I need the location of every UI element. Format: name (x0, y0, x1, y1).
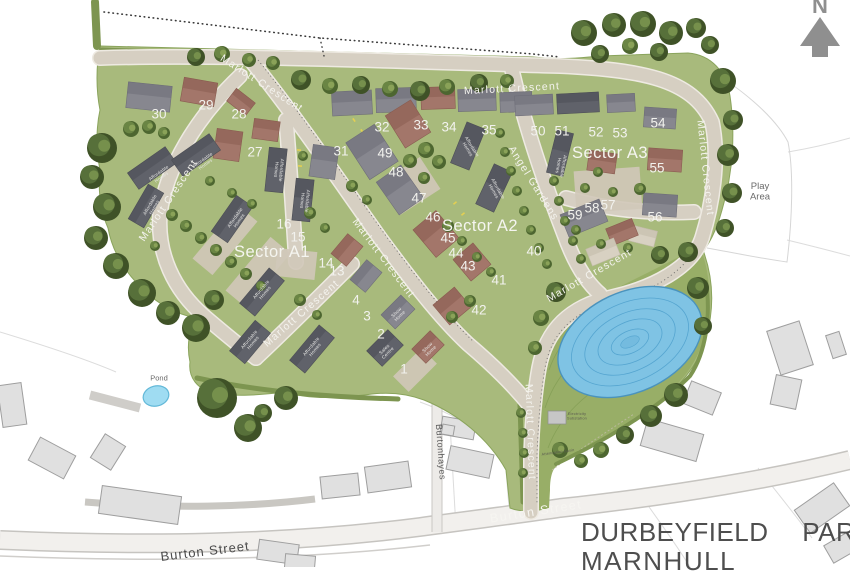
tree-icon (526, 225, 536, 235)
plot-number-label: 46 (425, 210, 440, 225)
building (213, 128, 243, 161)
tree-icon (274, 386, 298, 410)
tree-icon (717, 144, 739, 166)
plot-number-label: 28 (231, 107, 246, 122)
sector-label: Sector A3 (572, 144, 648, 162)
tree-icon (87, 133, 117, 163)
tree-icon (687, 277, 709, 299)
tree-icon (571, 20, 597, 46)
parcel-line (0, 332, 116, 372)
plot-number-label: 1 (400, 362, 408, 377)
tree-icon (128, 279, 156, 307)
tree-icon (576, 254, 586, 264)
context-building (683, 381, 722, 415)
plan-title-line1: DURBEYFIELD PARK, (581, 518, 850, 547)
tree-icon (593, 442, 609, 458)
tree-icon (187, 48, 205, 66)
building (252, 118, 281, 141)
tree-icon (254, 404, 272, 422)
parcel-line (788, 138, 850, 152)
tree-icon (418, 142, 434, 158)
plot-number-label: 32 (374, 120, 389, 135)
tree-icon (432, 155, 446, 169)
tree-icon (247, 199, 257, 209)
context-building (284, 554, 315, 567)
tree-icon (591, 45, 609, 63)
plot-number-label: 2 (377, 327, 385, 342)
tree-icon (195, 232, 207, 244)
tree-icon (410, 81, 430, 101)
plot-number-label: 43 (460, 259, 475, 274)
plot-number-label: 31 (333, 144, 348, 159)
plot-number-label: 54 (650, 116, 666, 131)
pond-label: Pond (150, 374, 168, 383)
tree-icon (664, 383, 688, 407)
plot-number-label: 40 (526, 244, 541, 259)
building (331, 90, 372, 116)
plot-number-label: 16 (276, 217, 291, 232)
context-building (826, 331, 847, 358)
plan-title-line2: MARNHULL (581, 547, 850, 576)
tree-icon (80, 165, 104, 189)
tree-icon (580, 183, 590, 193)
tree-icon (723, 110, 743, 130)
tree-icon (554, 196, 564, 206)
tree-icon (608, 187, 618, 197)
plot-number-label: 30 (151, 107, 166, 122)
tree-icon (571, 225, 581, 235)
building (515, 94, 554, 116)
plot-number-label: 29 (198, 98, 213, 113)
tree-icon (291, 70, 311, 90)
tree-icon (651, 246, 669, 264)
tree-icon (158, 127, 170, 139)
tree-icon (630, 11, 656, 37)
tree-icon (694, 317, 712, 335)
plot-number-label: 49 (377, 146, 392, 161)
plot-number-label: 56 (647, 210, 662, 225)
tree-icon (722, 183, 742, 203)
tree-icon (240, 268, 252, 280)
tree-icon (549, 176, 559, 186)
tree-icon (84, 226, 108, 250)
plot-number-label: 48 (388, 165, 403, 180)
context-building (364, 461, 411, 493)
tree-icon (650, 43, 668, 61)
context-building (320, 473, 360, 499)
tree-icon (542, 259, 552, 269)
tree-icon (533, 310, 549, 326)
plot-number-label: 57 (600, 198, 615, 213)
tree-icon (640, 405, 662, 427)
tree-icon (512, 186, 522, 196)
tree-icon (312, 310, 322, 320)
context-building (28, 437, 76, 479)
tree-icon (701, 36, 719, 54)
plot-number-label: 4 (352, 293, 360, 308)
tree-icon (204, 290, 224, 310)
building (607, 93, 636, 112)
electricity-substation-label: ElectricitySubstation (567, 412, 587, 420)
plot-number-label: 58 (584, 201, 599, 216)
plot-number-label: 3 (363, 309, 371, 324)
tree-icon (103, 253, 129, 279)
tree-icon (519, 206, 529, 216)
tree-icon (568, 236, 578, 246)
north-arrow-icon (800, 17, 840, 57)
context-building (98, 486, 181, 525)
plot-number-label: 44 (448, 246, 464, 261)
tree-icon (150, 241, 160, 251)
tree-icon (362, 195, 372, 205)
tree-icon (322, 78, 338, 94)
tree-icon (346, 180, 358, 192)
plot-number-label: 45 (440, 231, 455, 246)
plot-number-label: 14 (318, 256, 334, 271)
plot-number-label: 52 (588, 125, 603, 140)
tree-icon (622, 38, 638, 54)
tree-icon (382, 81, 398, 97)
tree-icon (686, 18, 706, 38)
tree-icon (506, 166, 516, 176)
site-plan-page: { "title": { "line1": "DURBEYFIELD PARK,… (0, 0, 850, 567)
context-building (770, 375, 802, 410)
tree-icon (596, 239, 606, 249)
context-building (0, 383, 27, 428)
parcel-line (787, 240, 850, 256)
tree-icon (266, 56, 280, 70)
tree-icon (634, 183, 646, 195)
plot-number-label: 50 (530, 124, 545, 139)
north-letter: N (812, 0, 828, 18)
plot-number-label: 15 (290, 230, 305, 245)
tree-icon (156, 301, 180, 325)
site-plan-map: Marlott CrescentMarlott CrescentMarlott … (0, 0, 850, 567)
plot-number-label: 35 (481, 123, 496, 138)
tree-icon (602, 13, 626, 37)
tree-icon (93, 193, 121, 221)
context-building (767, 321, 814, 375)
plot-number-label: 47 (411, 191, 426, 206)
tree-icon (205, 176, 215, 186)
plot-number-label: 55 (649, 161, 664, 176)
context-building (90, 434, 125, 470)
tree-icon (446, 311, 458, 323)
plot-number-label: 59 (567, 208, 582, 223)
north-arrow: N (800, 0, 840, 57)
tree-icon (180, 220, 192, 232)
tree-icon (227, 188, 237, 198)
tree-icon (678, 242, 698, 262)
sector-label: Sector A1 (234, 243, 310, 261)
tree-icon (210, 244, 222, 256)
substation-box (548, 411, 566, 424)
plot-number-label: 51 (554, 124, 569, 139)
tree-icon (320, 223, 330, 233)
tree-icon (710, 68, 736, 94)
tree-icon (616, 426, 634, 444)
tree-icon (403, 154, 417, 168)
plot-number-label: 42 (471, 303, 486, 318)
plot-number-label: 27 (247, 145, 262, 160)
tree-icon (182, 314, 210, 342)
tree-icon (352, 76, 370, 94)
tree-icon (197, 378, 237, 418)
tree-icon (142, 120, 156, 134)
play-area-label: PlayArea (750, 181, 771, 202)
tree-icon (298, 151, 308, 161)
plot-number-label: 33 (413, 118, 428, 133)
plot-number-label: 41 (491, 273, 506, 288)
tree-icon (593, 167, 603, 177)
west-lane (90, 395, 140, 408)
tree-icon (123, 121, 139, 137)
plot-number-label: 34 (441, 120, 457, 135)
plot-number-label: 53 (612, 126, 627, 141)
tree-icon (574, 454, 588, 468)
tree-icon (716, 219, 734, 237)
tree-icon (418, 172, 430, 184)
tree-icon (659, 21, 683, 45)
tree-icon (457, 236, 467, 246)
tree-icon (528, 341, 542, 355)
tree-icon (439, 79, 455, 95)
building (557, 92, 600, 114)
small-pond (141, 383, 171, 409)
